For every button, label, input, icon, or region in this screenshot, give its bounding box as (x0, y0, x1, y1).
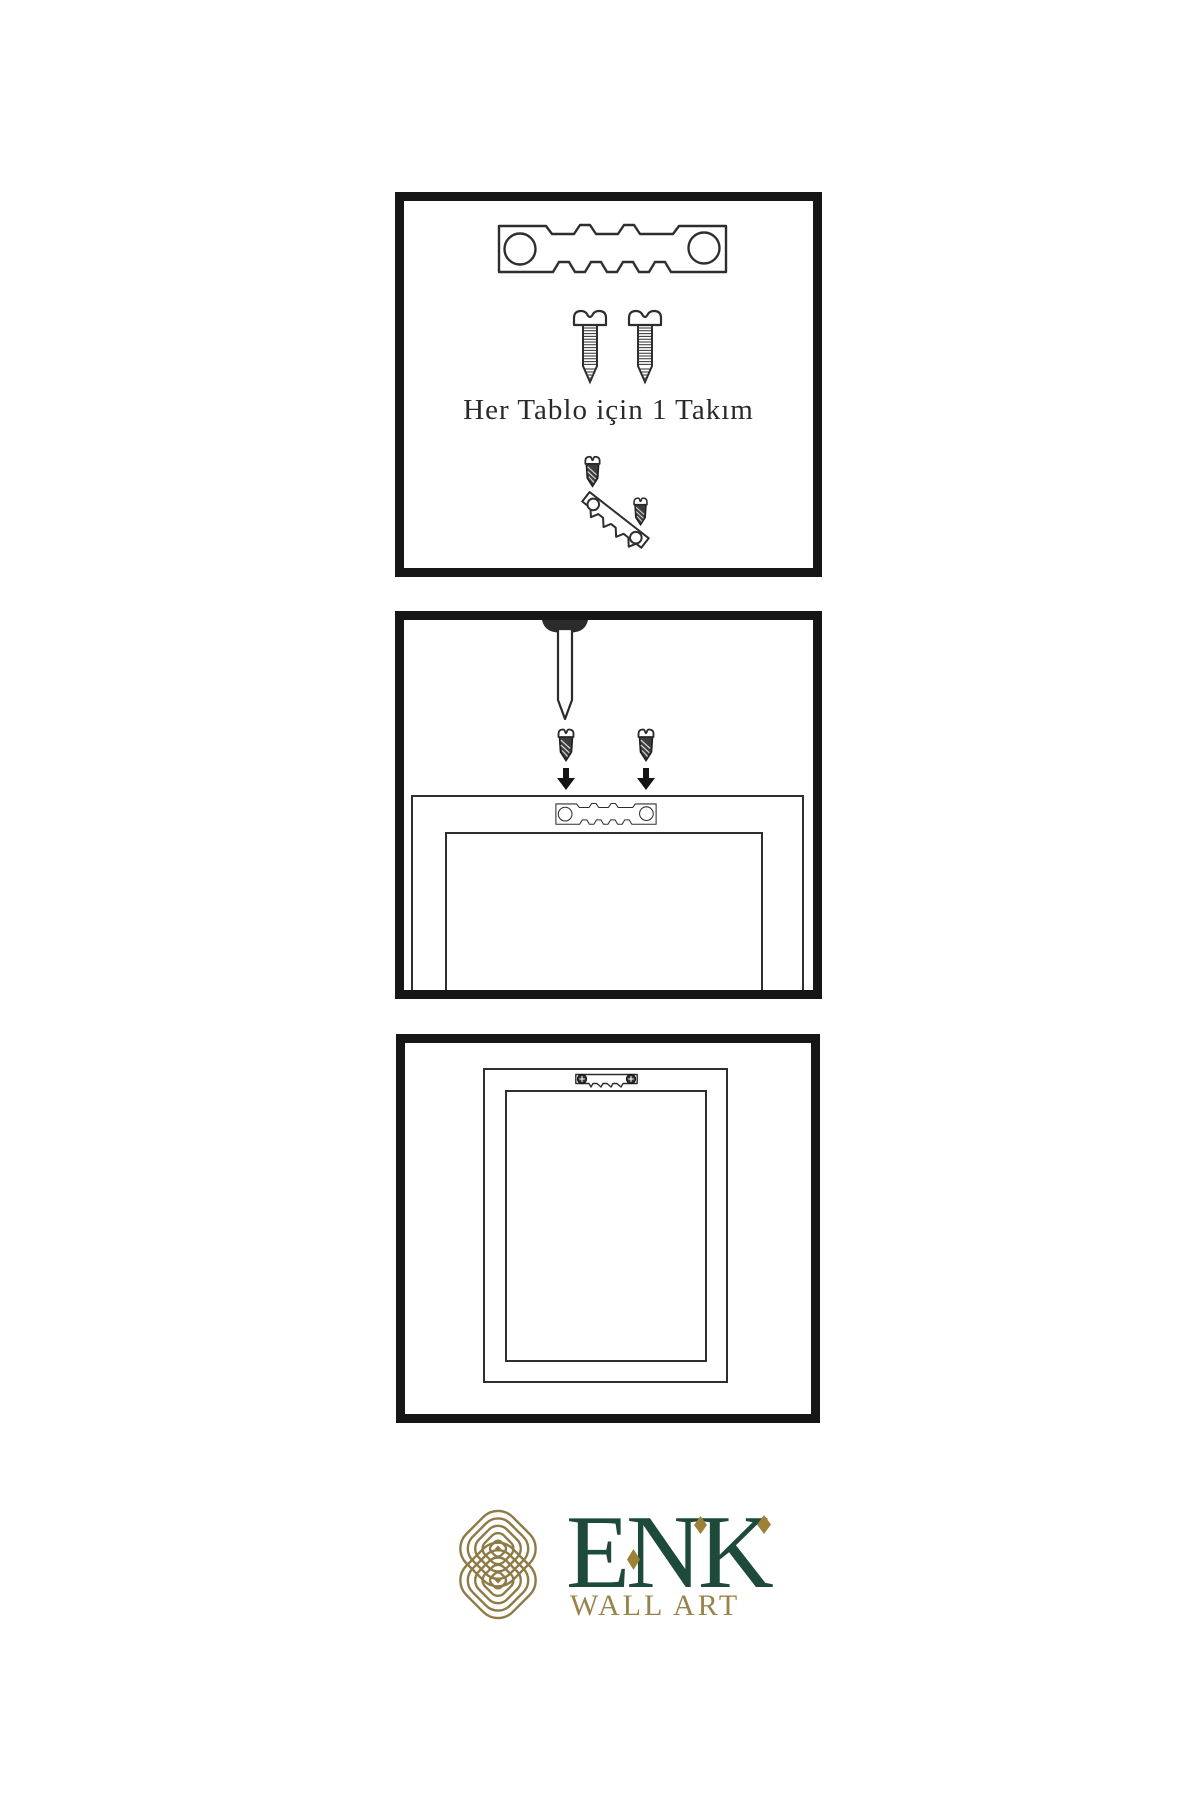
screw-icon (570, 307, 610, 385)
interlocking-knot-icon (438, 1502, 558, 1627)
sawtooth-hanger-screwed-icon (575, 1073, 638, 1089)
down-arrow-icon (557, 768, 575, 790)
instruction-sheet: Her Tablo için 1 Takım (0, 0, 1200, 1800)
diamond-accent-icon (694, 1516, 707, 1534)
dark-screw-icon (555, 725, 577, 765)
screw-icon (625, 307, 665, 385)
step-1-panel: Her Tablo için 1 Takım (395, 192, 822, 577)
dark-screw-icon (635, 725, 657, 765)
step-3-panel (396, 1034, 820, 1423)
brand-tagline: WALL ART (570, 1591, 740, 1621)
diamond-accent-icon (627, 1549, 640, 1570)
dark-screw-icon (631, 496, 650, 527)
step-2-panel (395, 611, 822, 999)
sawtooth-hanger-icon (555, 802, 657, 828)
step-1-caption: Her Tablo için 1 Takım (404, 394, 813, 427)
down-arrow-icon (637, 768, 655, 790)
frame-back-inner-edge (505, 1090, 707, 1362)
diamond-accent-icon (757, 1515, 771, 1534)
sawtooth-hanger-icon (497, 222, 728, 280)
frame-back-inner-edge (445, 832, 763, 999)
wall-nail-icon (542, 620, 588, 726)
dark-screw-icon (582, 454, 603, 489)
